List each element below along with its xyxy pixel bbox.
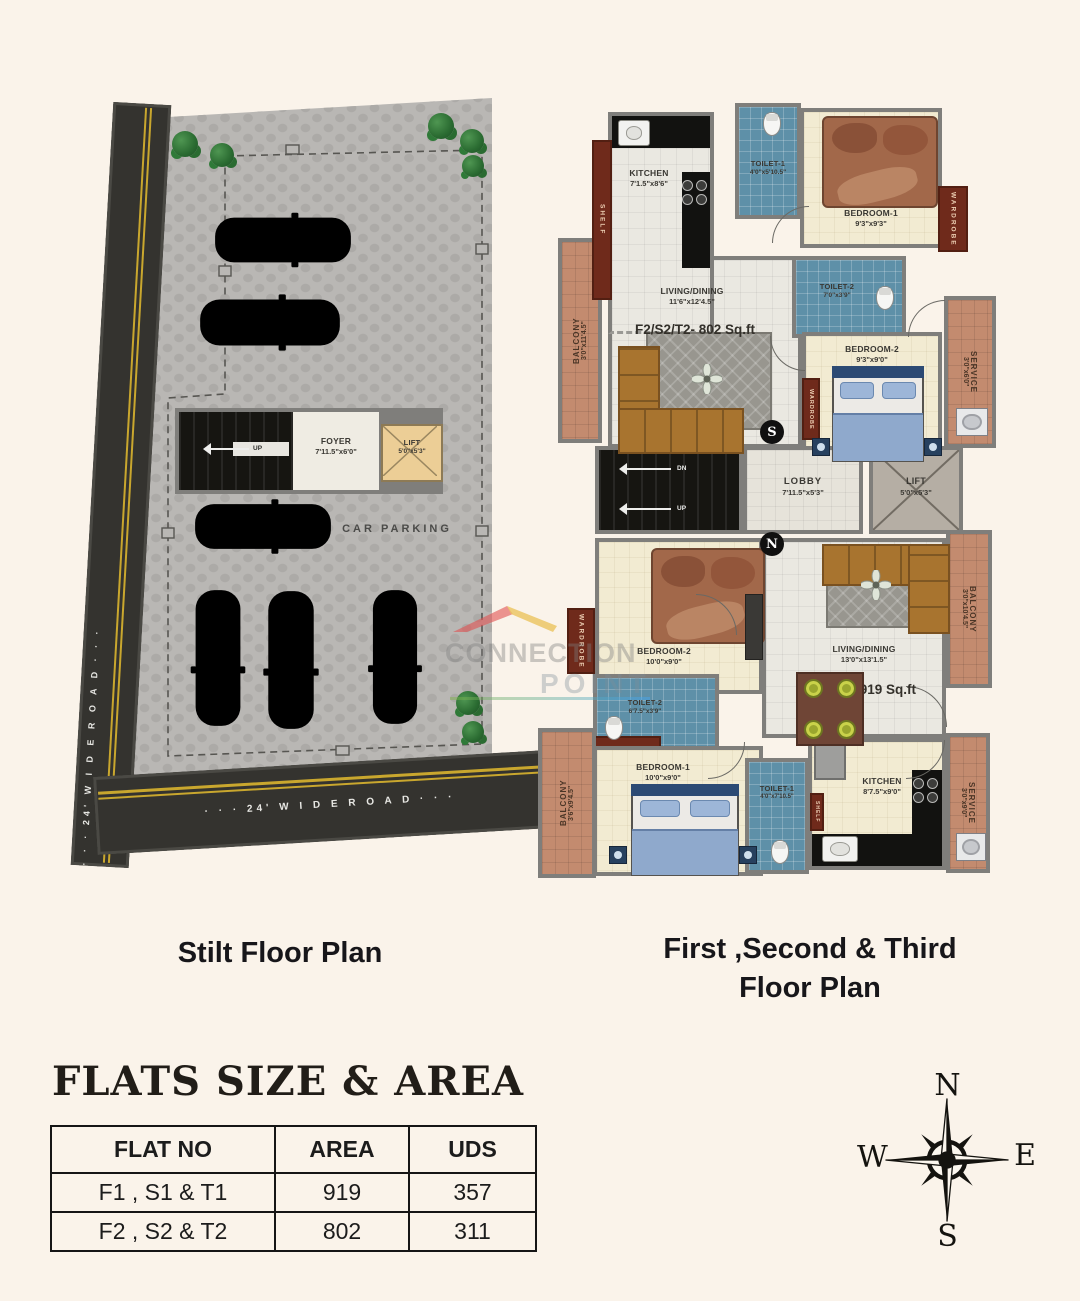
sofa — [908, 544, 950, 634]
wardrobe-f1-bedroom2: WARDROBE — [567, 608, 595, 674]
room-toilet2-f2: TOILET-2 7'0"x3'9" — [792, 256, 906, 338]
toilet-icon — [605, 716, 623, 740]
room-label: TOILET-1 4'0"x7'10.5" — [743, 784, 811, 802]
room-label: BEDROOM-1 10'0"x9'0" — [597, 762, 729, 783]
dn-label: DN — [677, 465, 686, 472]
stilt-core-block: UP FOYER 7'11.5"x6'0" LIFT 5'0"x5'3" — [175, 408, 443, 494]
car-top-view — [193, 498, 333, 555]
compass-east-label: E — [1014, 1138, 1036, 1173]
car-top-view — [190, 588, 246, 728]
room-balcony-f1-left: BALCONY 3'6"x9'4.5" — [538, 728, 596, 878]
car-parking-label: CAR PARKING — [322, 523, 472, 535]
room-label: LOBBY 7'11.5"x5'3" — [747, 476, 859, 498]
stilt-plan-title: Stilt Floor Plan — [90, 934, 470, 973]
cell-uds: 311 — [409, 1212, 536, 1251]
room-service-f1: SERVICE 3'0"x9'0" — [946, 733, 990, 873]
stilt-lift: LIFT 5'0"x5'3" — [381, 424, 443, 482]
room-balcony-f2: BALCONY 3'0"x11'4.5" — [558, 238, 602, 443]
marker-south: S — [760, 420, 784, 444]
compass-star-icon — [882, 1095, 1012, 1225]
sink — [822, 836, 858, 862]
room-label: TOILET-2 7'0"x3'9" — [796, 282, 878, 300]
col-area: AREA — [275, 1126, 409, 1173]
toilet-icon — [763, 112, 781, 136]
car-top-view — [210, 212, 356, 268]
bed — [631, 784, 739, 876]
stilt-floor-plan: · · · 24' W I D E R O A D · · · · · · 24… — [40, 95, 520, 875]
car-top-view — [365, 588, 425, 726]
room-label: BALCONY 3'0"x10'4.5" — [950, 534, 988, 684]
sink — [618, 120, 650, 146]
typical-plan-title-line2: Floor Plan — [600, 969, 1020, 1008]
room-service-f2: SERVICE 3'0"x6'0" — [944, 296, 996, 448]
tree-icon — [172, 131, 198, 157]
typical-plan-title: First ,Second & Third Floor Plan — [600, 930, 1020, 1008]
up-label: UP — [253, 445, 262, 452]
plate — [804, 720, 823, 739]
room-balcony-f1-right: BALCONY 3'0"x10'4.5" — [946, 530, 992, 688]
bed — [832, 366, 924, 462]
up-arrow-icon — [205, 448, 249, 450]
marker-north: N — [760, 532, 784, 556]
tv-unit — [745, 594, 763, 660]
lift-label: LIFT 5'0"x5'3" — [383, 438, 441, 456]
foyer: FOYER 7'11.5"x6'0" — [293, 412, 379, 490]
room-bedroom2-f1: BEDROOM-2 10'0"x9'0" — [595, 538, 763, 694]
col-flat-no: FLAT NO — [51, 1126, 275, 1173]
up-label: UP — [677, 505, 686, 512]
cell-flat-no: F1 , S1 & T1 — [51, 1173, 275, 1212]
tree-icon — [462, 155, 484, 177]
room-label: LIVING/DINING 13'0"x13'1.5" — [786, 644, 942, 665]
ceiling-fan-icon — [692, 364, 722, 394]
car-top-view — [198, 293, 342, 352]
room-bedroom1-f2: BEDROOM-1 9'3"x9'3" — [800, 108, 942, 248]
tree-icon — [460, 129, 484, 153]
cell-area: 919 — [275, 1173, 409, 1212]
room-label: BALCONY 3'6"x9'4.5" — [542, 732, 592, 874]
room-label: KITCHEN 7'1.5"x8'6" — [612, 168, 686, 189]
room-label: SERVICE 3'0"x9'0" — [950, 737, 986, 869]
tree-icon — [428, 113, 454, 139]
room-label: LIFT 5'0"x5'3" — [873, 476, 959, 497]
bed — [822, 116, 938, 208]
toilet-icon — [876, 286, 894, 310]
col-uds: UDS — [409, 1126, 536, 1173]
room-label: KITCHEN 8'7.5"x9'0" — [822, 776, 942, 797]
down-arrow-icon — [621, 468, 671, 470]
fridge — [814, 744, 846, 780]
plate — [804, 679, 823, 698]
room-label: LIVING/DINING 11'6"x12'4.5" — [616, 286, 768, 307]
road-left-label: · · · 24' W I D E R O A D · · · — [79, 102, 132, 865]
room-bedroom2-f2: BEDROOM-2 9'3"x9'0" — [802, 332, 942, 462]
core-staircase: DN UP — [595, 446, 743, 534]
foyer-label: FOYER 7'11.5"x6'0" — [293, 436, 379, 457]
ceiling-fan-icon — [861, 570, 891, 600]
room-label: BEDROOM-2 9'3"x9'0" — [806, 344, 938, 365]
room-label: SERVICE 3'0"x6'0" — [948, 300, 992, 444]
flats-table-title: FLATS SIZE & AREA — [52, 1058, 537, 1105]
stilt-staircase: UP — [179, 412, 293, 490]
table-row: F1 , S1 & T1 919 357 — [51, 1173, 536, 1212]
wardrobe-f2-bedroom2: WARDROBE — [802, 378, 820, 440]
side-table — [609, 846, 627, 864]
room-label: TOILET-2 6'7.5"x3'9" — [601, 698, 689, 716]
room-label: TOILET-1 4'0"x5'10.5" — [735, 159, 801, 177]
side-table — [924, 438, 942, 456]
room-label: BEDROOM-1 9'3"x9'3" — [804, 208, 938, 229]
toilet-icon — [771, 840, 789, 864]
plate — [837, 720, 856, 739]
table-header-row: FLAT NO AREA UDS — [51, 1126, 536, 1173]
dining-table — [796, 672, 864, 746]
side-table — [739, 846, 757, 864]
road-bottom-label: · · · 24' W I D E R O A D · · · — [95, 785, 565, 824]
tree-icon — [456, 691, 480, 715]
room-label: BALCONY 3'0"x11'4.5" — [562, 242, 598, 439]
room-label: BEDROOM-2 10'0"x9'0" — [599, 646, 729, 667]
cell-area: 802 — [275, 1212, 409, 1251]
up-arrow-icon — [621, 508, 671, 510]
room-bedroom1-f1: BEDROOM-1 10'0"x9'0" — [593, 746, 763, 876]
plate — [837, 679, 856, 698]
flats-table: FLAT NO AREA UDS F1 , S1 & T1 919 357 F2… — [50, 1125, 537, 1252]
table-row: F2 , S2 & T2 802 311 — [51, 1212, 536, 1251]
tree-icon — [210, 143, 234, 167]
wardrobe-f2-bedroom1: WARDROBE — [938, 186, 968, 252]
car-top-view — [262, 589, 320, 731]
flats-size-area-section: FLATS SIZE & AREA FLAT NO AREA UDS F1 , … — [50, 1058, 537, 1252]
floorplan-sheet: · · · 24' W I D E R O A D · · · · · · 24… — [0, 0, 1080, 1301]
cell-uds: 357 — [409, 1173, 536, 1212]
side-table — [812, 438, 830, 456]
unit-area-label: F2/S2/T2- 802 Sq.ft — [612, 322, 778, 337]
door-arc — [908, 300, 945, 337]
room-toilet1-f2: TOILET-1 4'0"x5'10.5" — [735, 103, 801, 219]
compass-rose: N S W E — [855, 1072, 1040, 1250]
typical-plan-title-line1: First ,Second & Third — [600, 930, 1020, 969]
shelf-f1: SHELF — [810, 793, 824, 831]
sofa — [618, 408, 744, 454]
typical-floor-plan: BALCONY 3'0"x11'4.5" LIVING/DINING 11'6"… — [530, 88, 1010, 900]
cell-flat-no: F2 , S2 & T2 — [51, 1212, 275, 1251]
tree-icon — [462, 721, 484, 743]
